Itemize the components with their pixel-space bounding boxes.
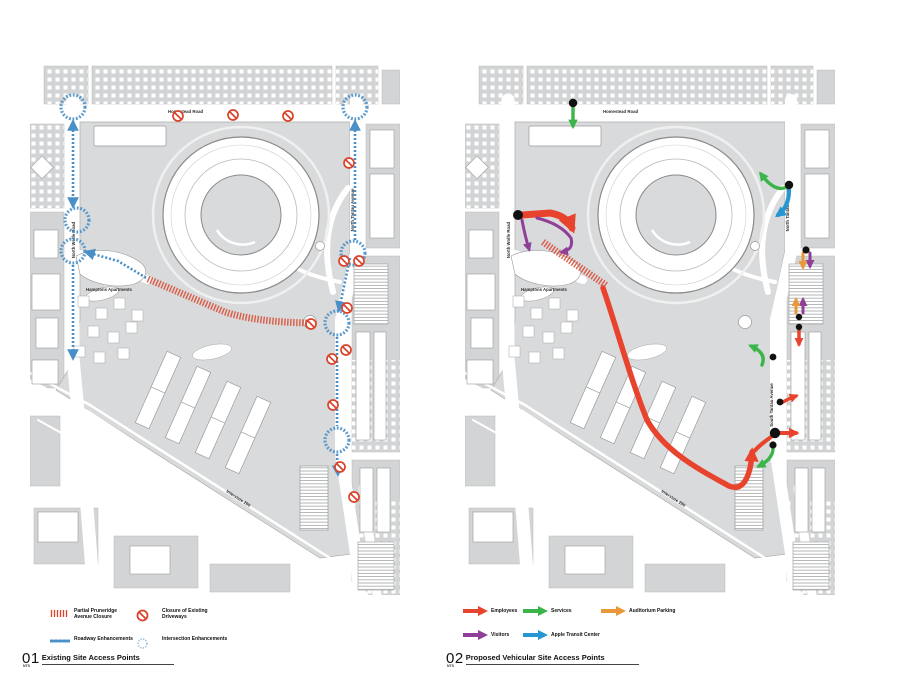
proposed-site-map: South Tantau Avenue <box>465 60 835 595</box>
proposed-legend: Employees Services Auditorium Parking Vi… <box>463 606 723 654</box>
scale-note: NTS <box>23 664 30 668</box>
legend-label: Services <box>551 608 572 614</box>
scale-note: NTS <box>447 664 454 668</box>
pruneridge-closure-icon <box>50 608 74 620</box>
driveway-closure-icon <box>136 608 162 624</box>
employees-arrow-icon <box>463 606 488 616</box>
legend-label: Intersection Enhancements <box>162 636 232 642</box>
label-south-tantau: South Tantau Avenue <box>769 383 774 427</box>
services-arrow-icon <box>523 606 548 616</box>
legend-item-visitors: Visitors <box>463 630 523 640</box>
existing-site-map: Homestead Road North Tantau Avenue North… <box>30 60 400 595</box>
drawing-title: Existing Site Access Points <box>42 651 174 665</box>
proposed-map-title: 02 NTS Proposed Vehicular Site Access Po… <box>446 650 639 668</box>
legend-item-services: Services <box>523 606 601 616</box>
legend-item-employees: Employees <box>463 606 523 616</box>
legend-item-auditorium-parking: Auditorium Parking <box>601 606 675 616</box>
visitors-arrow-icon <box>463 630 488 640</box>
legend-label: Employees <box>491 608 517 614</box>
existing-map-title: 01 NTS Existing Site Access Points <box>22 650 174 668</box>
drawing-title: Proposed Vehicular Site Access Points <box>466 651 639 665</box>
legend-label: Auditorium Parking <box>629 608 675 614</box>
auditorium-parking-arrow-icon <box>601 606 626 616</box>
legend-item-apple-transit-center: Apple Transit Center <box>523 630 600 640</box>
apple-transit-arrow-icon <box>523 630 548 640</box>
roadway-enhancements-icon <box>50 636 74 647</box>
legend-label: Visitors <box>491 632 509 638</box>
legend-label: Partial Pruneridge Avenue Closure <box>74 608 136 620</box>
legend-label: Roadway Enhancements <box>74 636 136 642</box>
legend-label: Apple Transit Center <box>551 632 600 638</box>
existing-legend: Partial Pruneridge Avenue Closure Closur… <box>50 608 232 652</box>
legend-label: Closure of Existing Driveways <box>162 608 232 620</box>
